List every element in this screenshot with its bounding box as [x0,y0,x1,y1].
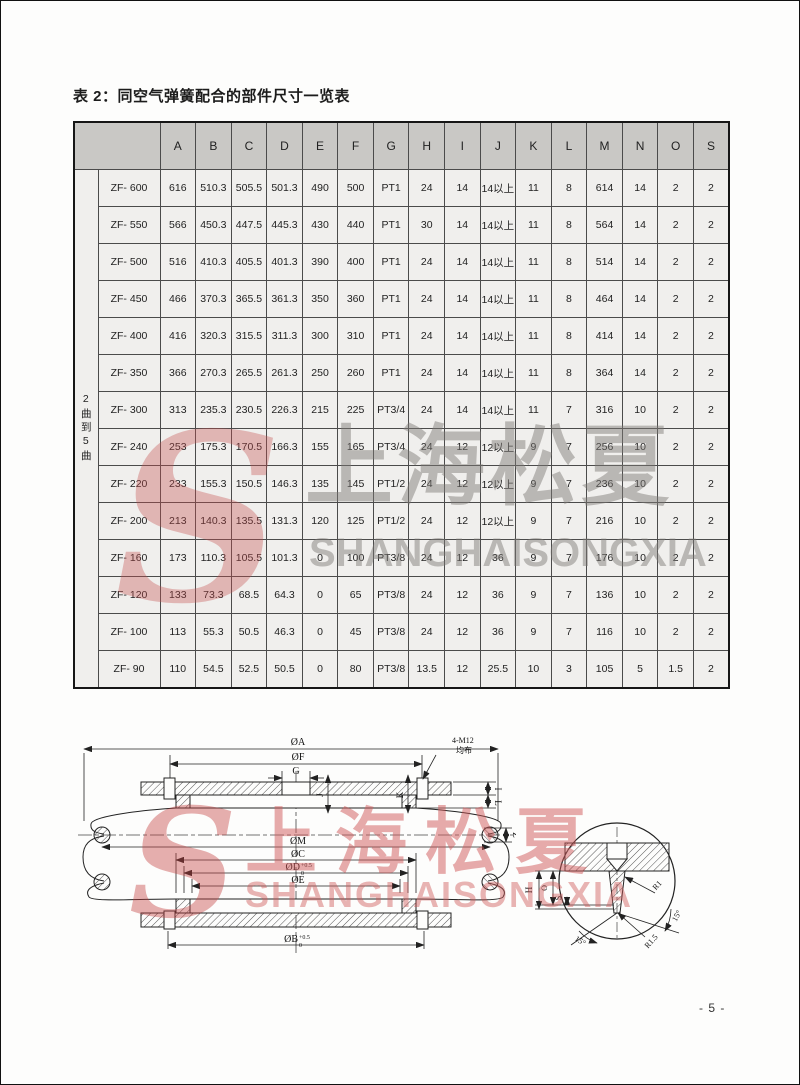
value-cell: 136 [587,577,623,614]
value-cell: 2 [693,614,729,651]
value-cell: 11 [516,318,552,355]
bolt-note-line2: 均布 [456,745,472,755]
value-cell: 566 [160,207,196,244]
col-header-D: D [267,122,303,170]
value-cell: 125 [338,503,374,540]
value-cell: 230.5 [231,392,267,429]
dim-label-dia-b-sup: +0.5 [299,935,310,941]
value-cell: 2 [693,651,729,689]
col-header-C: C [231,122,267,170]
value-cell: 447.5 [231,207,267,244]
value-cell: 9 [516,614,552,651]
value-cell: 36 [480,540,516,577]
value-cell: 2 [658,281,694,318]
value-cell: PT1 [373,281,409,318]
value-cell: 225 [338,392,374,429]
catalog-page: 表 2：同空气弹簧配合的部件尺寸一览表 ABCDEFGHIJKLMNOS 2曲到… [0,0,800,1085]
value-cell: 50.5 [231,614,267,651]
value-cell: 14 [622,355,658,392]
col-header-L: L [551,122,587,170]
value-cell: 12以上 [480,503,516,540]
value-cell: 46.3 [267,614,303,651]
col-header-B: B [196,122,232,170]
value-cell: 2 [658,318,694,355]
value-cell: 12 [445,651,481,689]
value-cell: 14以上 [480,355,516,392]
value-cell: 2 [658,577,694,614]
table-row: ZF- 450466370.3365.5361.3350360PT1241414… [74,281,729,318]
value-cell: 166.3 [267,429,303,466]
value-cell: 2 [693,281,729,318]
value-cell: 14以上 [480,170,516,207]
value-cell: 216 [587,503,623,540]
value-cell: 2 [693,540,729,577]
page-number: - 5 - [699,1001,725,1015]
table-row: ZF- 550566450.3447.5445.3430440PT1301414… [74,207,729,244]
value-cell: PT1 [373,244,409,281]
value-cell: PT1 [373,355,409,392]
value-cell: 10 [622,466,658,503]
value-cell: 45 [338,614,374,651]
value-cell: 14以上 [480,281,516,318]
value-cell: 9 [516,540,552,577]
air-spring-section-drawing: ØA ØF G 4-M12 均布 J K I L Z ØM ØC ØD +0.5… [76,733,516,961]
model-cell: ZF- 300 [98,392,160,429]
dim-label-j: J [315,793,325,797]
value-cell: 235.3 [196,392,232,429]
value-cell: 2 [693,355,729,392]
row-group-label: 2曲到5曲 [74,170,98,689]
value-cell: 12 [445,429,481,466]
value-cell: 10 [622,614,658,651]
dim-label-h: H [524,886,534,893]
dim-label-dia-b-sub: 0 [299,943,302,949]
value-cell: 100 [338,540,374,577]
value-cell: 12以上 [480,466,516,503]
value-cell: 501.3 [267,170,303,207]
value-cell: 11 [516,244,552,281]
value-cell: 80 [338,651,374,689]
value-cell: 155 [302,429,338,466]
value-cell: 3 [551,651,587,689]
value-cell: 105 [587,651,623,689]
value-cell: 24 [409,355,445,392]
value-cell: 55.3 [196,614,232,651]
value-cell: 311.3 [267,318,303,355]
value-cell: 2 [658,540,694,577]
value-cell: PT1 [373,170,409,207]
dim-label-i: I [493,788,503,791]
value-cell: 256 [587,429,623,466]
value-cell: 564 [587,207,623,244]
value-cell: 236 [587,466,623,503]
value-cell: 131.3 [267,503,303,540]
angle-label-left: 15° [573,934,587,948]
table-row: ZF- 350366270.3265.5261.3250260PT1241414… [74,355,729,392]
value-cell: 133 [160,577,196,614]
value-cell: 2 [693,429,729,466]
value-cell: 365.5 [231,281,267,318]
value-cell: 120 [302,503,338,540]
table-row: ZF- 300313235.3230.5226.3215225PT3/42414… [74,392,729,429]
value-cell: 2 [693,577,729,614]
value-cell: 10 [622,577,658,614]
value-cell: 14 [445,318,481,355]
value-cell: 8 [551,355,587,392]
value-cell: 616 [160,170,196,207]
bellows-left [83,808,176,900]
col-header-G: G [373,122,409,170]
col-header-K: K [516,122,552,170]
dim-label-l: L [493,800,503,806]
value-cell: 7 [551,577,587,614]
value-cell: 10 [622,540,658,577]
value-cell: 24 [409,466,445,503]
value-cell: 14 [622,281,658,318]
value-cell: 135.5 [231,503,267,540]
value-cell: 24 [409,429,445,466]
value-cell: PT1/2 [373,466,409,503]
angle-label-right: 15° [670,909,683,923]
table-row: ZF- 240253175.3170.5166.3155165PT3/42412… [74,429,729,466]
value-cell: 155.3 [196,466,232,503]
value-cell: PT3/8 [373,577,409,614]
value-cell: 14以上 [480,207,516,244]
value-cell: 13.5 [409,651,445,689]
value-cell: 2 [658,170,694,207]
table-row: ZF- 400416320.3315.5311.3300310PT1241414… [74,318,729,355]
value-cell: PT1 [373,207,409,244]
value-cell: PT3/8 [373,614,409,651]
value-cell: 0 [302,540,338,577]
value-cell: 54.5 [196,651,232,689]
value-cell: 1.5 [658,651,694,689]
value-cell: 0 [302,651,338,689]
value-cell: 105.5 [231,540,267,577]
table-row: ZF- 500516410.3405.5401.3390400PT1241414… [74,244,729,281]
value-cell: 7 [551,392,587,429]
value-cell: 2 [658,503,694,540]
dim-label-dia-a: ØA [291,737,306,748]
model-cell: ZF- 240 [98,429,160,466]
value-cell: 5 [622,651,658,689]
value-cell: 313 [160,392,196,429]
value-cell: 64.3 [267,577,303,614]
value-cell: 8 [551,318,587,355]
model-cell: ZF- 450 [98,281,160,318]
value-cell: 12 [445,577,481,614]
value-cell: 110 [160,651,196,689]
value-cell: 8 [551,207,587,244]
value-cell: 2 [693,318,729,355]
model-cell: ZF- 500 [98,244,160,281]
value-cell: 8 [551,170,587,207]
value-cell: 2 [658,244,694,281]
col-header-H: H [409,122,445,170]
table-row: ZF- 220233155.3150.5146.3135145PT1/22412… [74,466,729,503]
value-cell: 2 [658,614,694,651]
value-cell: 165 [338,429,374,466]
value-cell: 7 [551,429,587,466]
value-cell: 614 [587,170,623,207]
value-cell: 14 [445,392,481,429]
value-cell: 405.5 [231,244,267,281]
value-cell: 516 [160,244,196,281]
value-cell: 14以上 [480,318,516,355]
value-cell: 361.3 [267,281,303,318]
model-cell: ZF- 350 [98,355,160,392]
value-cell: 11 [516,355,552,392]
value-cell: 464 [587,281,623,318]
value-cell: PT1/2 [373,503,409,540]
value-cell: 14 [622,170,658,207]
value-cell: 2 [693,466,729,503]
value-cell: 9 [516,429,552,466]
model-cell: ZF- 160 [98,540,160,577]
value-cell: 175.3 [196,429,232,466]
value-cell: 36 [480,577,516,614]
model-cell: ZF- 90 [98,651,160,689]
value-cell: 14以上 [480,244,516,281]
model-cell: ZF- 220 [98,466,160,503]
value-cell: 316 [587,392,623,429]
dim-label-s: S [554,896,563,900]
value-cell: 400 [338,244,374,281]
value-cell: 11 [516,281,552,318]
dim-label-dia-d: ØD [286,862,300,873]
bottom-plate [141,899,451,929]
value-cell: 360 [338,281,374,318]
value-cell: 65 [338,577,374,614]
value-cell: 215 [302,392,338,429]
value-cell: 370.3 [196,281,232,318]
value-cell: 430 [302,207,338,244]
value-cell: 10 [622,392,658,429]
value-cell: 390 [302,244,338,281]
value-cell: 350 [302,281,338,318]
value-cell: 24 [409,614,445,651]
table-row: 2曲到5曲ZF- 600616510.3505.5501.3490500PT12… [74,170,729,207]
dim-label-dia-d-sup: +0.5 [301,863,312,869]
dim-label-o: O [540,885,549,891]
parts-table-wrap: ABCDEFGHIJKLMNOS 2曲到5曲ZF- 600616510.3505… [73,121,730,689]
value-cell: 14 [622,244,658,281]
value-cell: 12 [445,540,481,577]
value-cell: 401.3 [267,244,303,281]
value-cell: 7 [551,466,587,503]
value-cell: 9 [516,577,552,614]
dim-label-dia-e: ØE [291,875,304,886]
value-cell: 270.3 [196,355,232,392]
value-cell: 2 [693,207,729,244]
model-cell: ZF- 600 [98,170,160,207]
value-cell: 24 [409,577,445,614]
value-cell: 10 [516,651,552,689]
value-cell: 30 [409,207,445,244]
value-cell: 146.3 [267,466,303,503]
value-cell: 414 [587,318,623,355]
value-cell: 9 [516,503,552,540]
value-cell: 8 [551,244,587,281]
value-cell: 226.3 [267,392,303,429]
value-cell: 11 [516,392,552,429]
table-row: ZF- 12013373.368.564.3065PT3/82412369713… [74,577,729,614]
dim-label-dia-b: ØB [284,934,298,945]
value-cell: 510.3 [196,170,232,207]
value-cell: 250 [302,355,338,392]
value-cell: 14 [622,207,658,244]
value-cell: 2 [658,429,694,466]
value-cell: PT3/4 [373,392,409,429]
value-cell: 12 [445,466,481,503]
col-header-I: I [445,122,481,170]
value-cell: 24 [409,318,445,355]
value-cell: 14 [445,355,481,392]
value-cell: 24 [409,503,445,540]
fillet-detail-drawing: H O S R1 R1.5 15° 15° [513,813,708,963]
value-cell: 364 [587,355,623,392]
value-cell: 315.5 [231,318,267,355]
value-cell: 176 [587,540,623,577]
value-cell: 300 [302,318,338,355]
value-cell: 140.3 [196,503,232,540]
value-cell: 101.3 [267,540,303,577]
value-cell: 24 [409,281,445,318]
value-cell: 10 [622,429,658,466]
value-cell: 9 [516,466,552,503]
parts-table: ABCDEFGHIJKLMNOS 2曲到5曲ZF- 600616510.3505… [73,121,730,689]
value-cell: 0 [302,614,338,651]
value-cell: 261.3 [267,355,303,392]
value-cell: 440 [338,207,374,244]
value-cell: 10 [622,503,658,540]
value-cell: 12 [445,614,481,651]
model-cell: ZF- 120 [98,577,160,614]
dim-label-dia-m: ØM [290,836,306,847]
value-cell: 14以上 [480,392,516,429]
table-header-row: ABCDEFGHIJKLMNOS [74,122,729,170]
radius-label-r1: R1 [651,879,664,892]
col-header-F: F [338,122,374,170]
value-cell: 135 [302,466,338,503]
value-cell: 500 [338,170,374,207]
value-cell: 2 [693,244,729,281]
value-cell: 24 [409,540,445,577]
value-cell: 12 [445,503,481,540]
value-cell: 7 [551,614,587,651]
col-header-S: S [693,122,729,170]
value-cell: 310 [338,318,374,355]
value-cell: 36 [480,614,516,651]
value-cell: 14 [445,281,481,318]
value-cell: 233 [160,466,196,503]
value-cell: PT3/8 [373,540,409,577]
value-cell: 52.5 [231,651,267,689]
corner-cell [74,122,160,170]
value-cell: 173 [160,540,196,577]
value-cell: PT3/4 [373,429,409,466]
value-cell: 7 [551,540,587,577]
value-cell: 11 [516,170,552,207]
dim-label-dia-c: ØC [291,849,305,860]
table-row: ZF- 160173110.3105.5101.30100PT3/8241236… [74,540,729,577]
value-cell: 410.3 [196,244,232,281]
value-cell: 14 [445,207,481,244]
value-cell: 450.3 [196,207,232,244]
dim-label-k: K [395,791,405,798]
value-cell: PT1 [373,318,409,355]
value-cell: 170.5 [231,429,267,466]
value-cell: 213 [160,503,196,540]
value-cell: 2 [658,466,694,503]
col-header-O: O [658,122,694,170]
value-cell: 116 [587,614,623,651]
value-cell: 113 [160,614,196,651]
value-cell: 73.3 [196,577,232,614]
bolt-note-line1: 4-M12 [452,736,474,745]
col-header-A: A [160,122,196,170]
value-cell: 445.3 [267,207,303,244]
value-cell: 24 [409,392,445,429]
value-cell: 14 [622,318,658,355]
col-header-J: J [480,122,516,170]
col-header-M: M [587,122,623,170]
col-header-N: N [622,122,658,170]
value-cell: 24 [409,170,445,207]
value-cell: 150.5 [231,466,267,503]
value-cell: 2 [658,207,694,244]
radius-label-r1-5: R1.5 [643,933,660,950]
value-cell: 466 [160,281,196,318]
value-cell: 12以上 [480,429,516,466]
value-cell: 490 [302,170,338,207]
value-cell: 50.5 [267,651,303,689]
table-row: ZF- 9011054.552.550.5080PT3/813.51225.51… [74,651,729,689]
value-cell: 8 [551,281,587,318]
bellows-right [416,808,509,900]
value-cell: 110.3 [196,540,232,577]
dim-label-g: G [292,766,299,777]
table-row: ZF- 200213140.3135.5131.3120125PT1/22412… [74,503,729,540]
value-cell: 265.5 [231,355,267,392]
model-cell: ZF- 200 [98,503,160,540]
value-cell: 2 [693,503,729,540]
value-cell: 24 [409,244,445,281]
value-cell: 14 [445,244,481,281]
model-cell: ZF- 400 [98,318,160,355]
value-cell: 145 [338,466,374,503]
value-cell: 2 [693,392,729,429]
value-cell: 25.5 [480,651,516,689]
value-cell: 416 [160,318,196,355]
value-cell: 2 [658,392,694,429]
value-cell: 320.3 [196,318,232,355]
value-cell: 253 [160,429,196,466]
value-cell: 14 [445,170,481,207]
value-cell: 11 [516,207,552,244]
value-cell: 2 [693,170,729,207]
col-header-E: E [302,122,338,170]
dim-label-dia-f: ØF [292,752,305,763]
value-cell: 366 [160,355,196,392]
value-cell: 505.5 [231,170,267,207]
value-cell: 7 [551,503,587,540]
value-cell: 260 [338,355,374,392]
value-cell: 68.5 [231,577,267,614]
value-cell: 2 [658,355,694,392]
model-cell: ZF- 550 [98,207,160,244]
value-cell: PT3/8 [373,651,409,689]
